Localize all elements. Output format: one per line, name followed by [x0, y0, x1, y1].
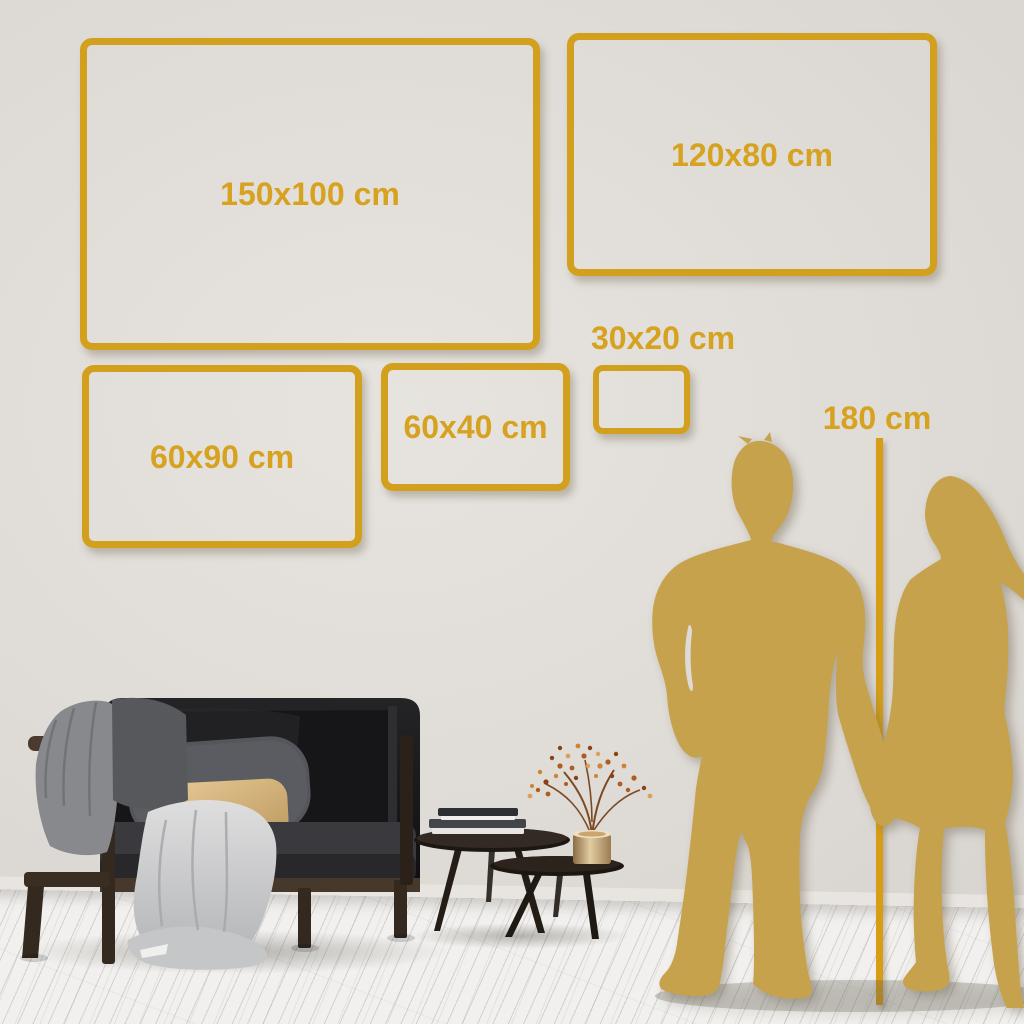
man-silhouette	[652, 441, 900, 999]
woman-silhouette	[870, 476, 1024, 1008]
couple-silhouette	[0, 0, 1024, 1024]
size-guide-scene: 150x100 cm 120x80 cm 60x90 cm 60x40 cm 3…	[0, 0, 1024, 1024]
